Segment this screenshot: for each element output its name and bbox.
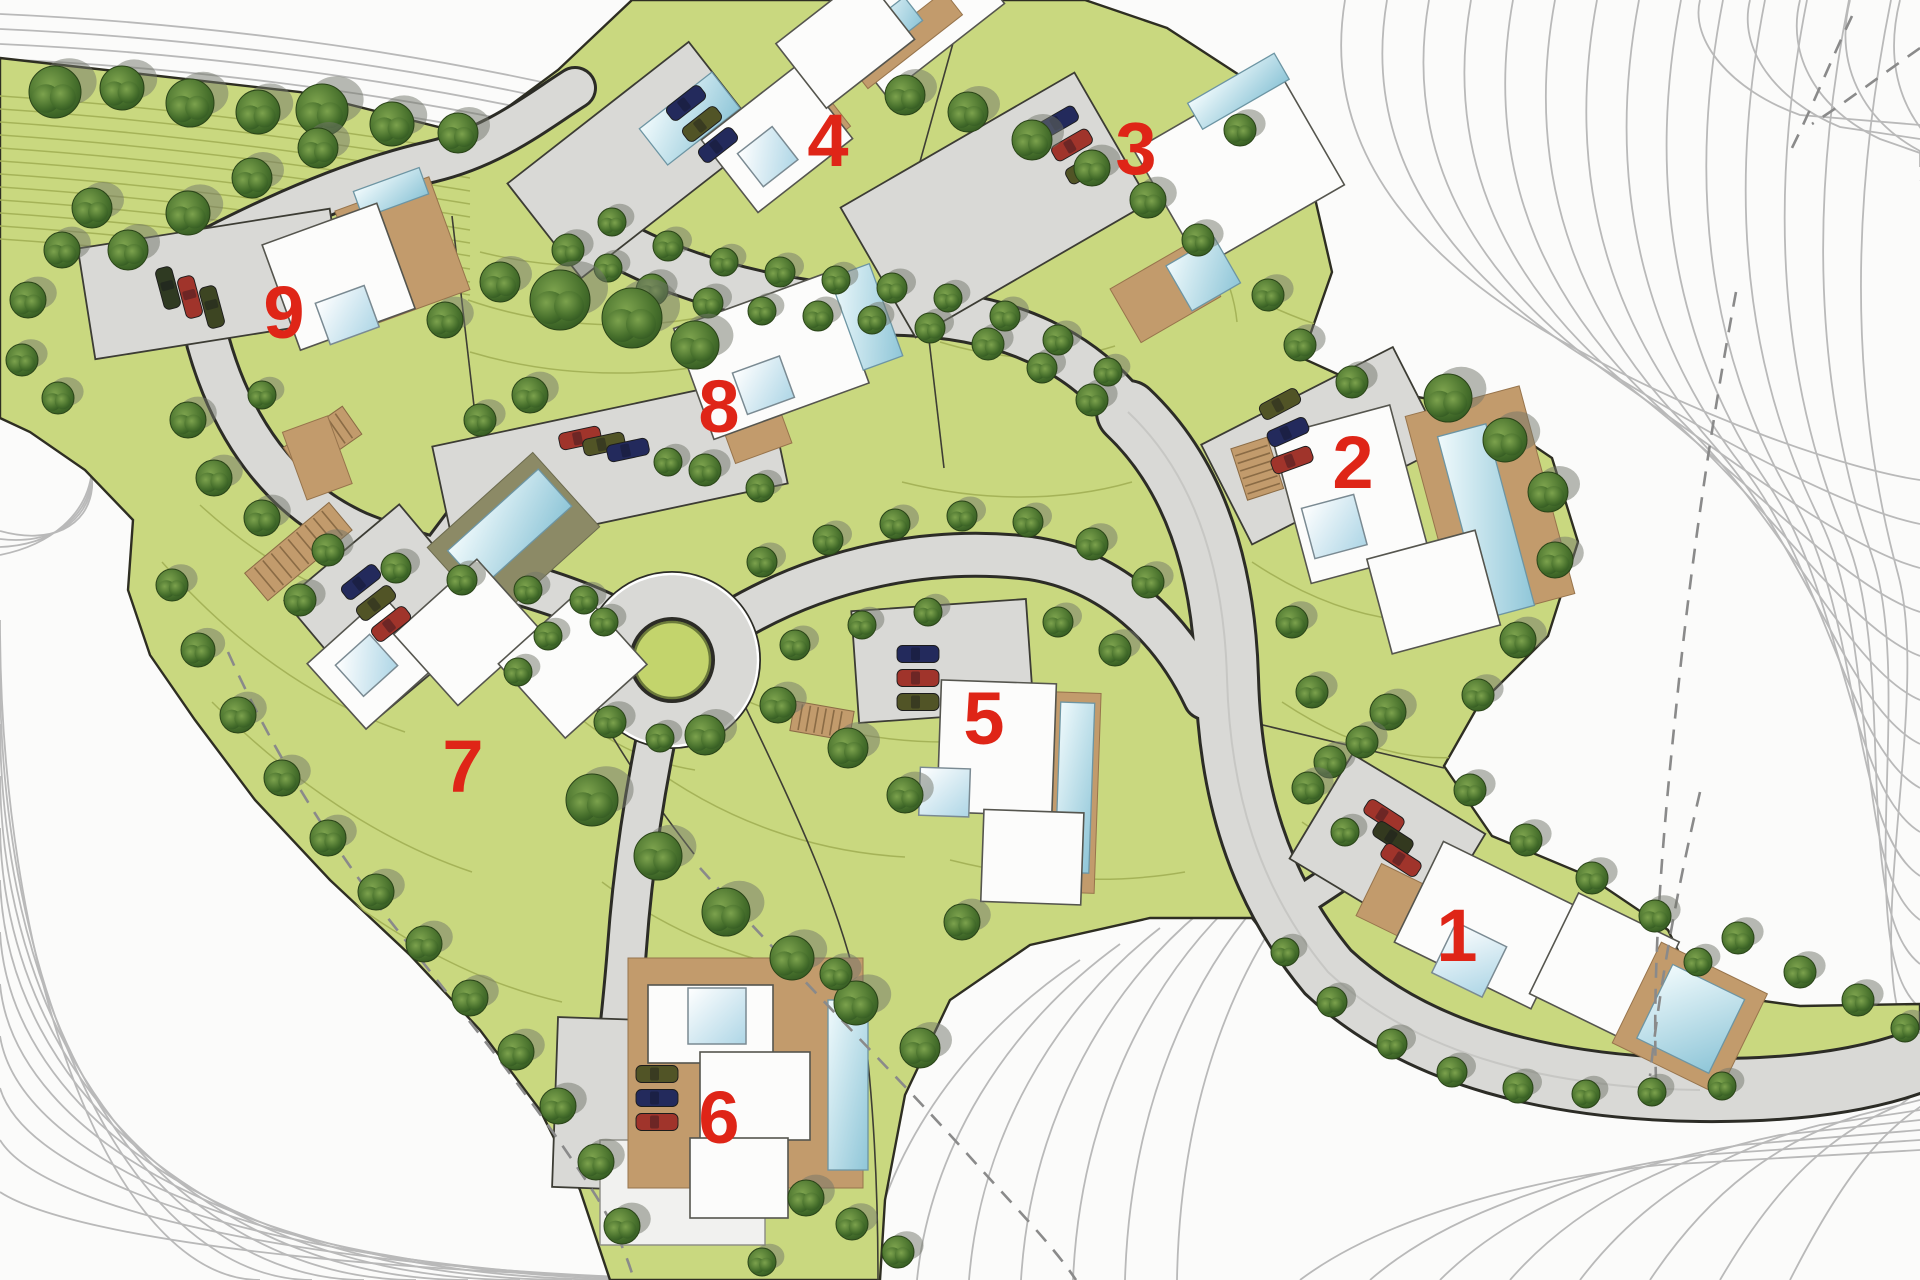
car-plot-6 — [636, 1066, 678, 1083]
plot-label-3: 3 — [1115, 107, 1156, 190]
site-plan: 123456789 — [0, 0, 1920, 1280]
car-plot-6 — [636, 1090, 678, 1107]
car-plot-5 — [897, 694, 939, 711]
car-plot-6 — [636, 1114, 678, 1131]
site-plan-canvas: 123456789 — [0, 0, 1920, 1280]
car-plot-5 — [897, 646, 939, 663]
plot-label-4: 4 — [807, 99, 848, 182]
roundabout-island — [634, 622, 710, 698]
plot-label-7: 7 — [442, 725, 483, 808]
house-6 — [628, 958, 868, 1218]
plot-label-1: 1 — [1436, 894, 1477, 977]
plot-label-5: 5 — [963, 677, 1004, 760]
plot-label-2: 2 — [1332, 421, 1373, 504]
car-plot-5 — [897, 670, 939, 687]
plot-label-6: 6 — [698, 1076, 739, 1159]
plot-label-9: 9 — [263, 271, 304, 354]
plot-label-8: 8 — [698, 365, 739, 448]
